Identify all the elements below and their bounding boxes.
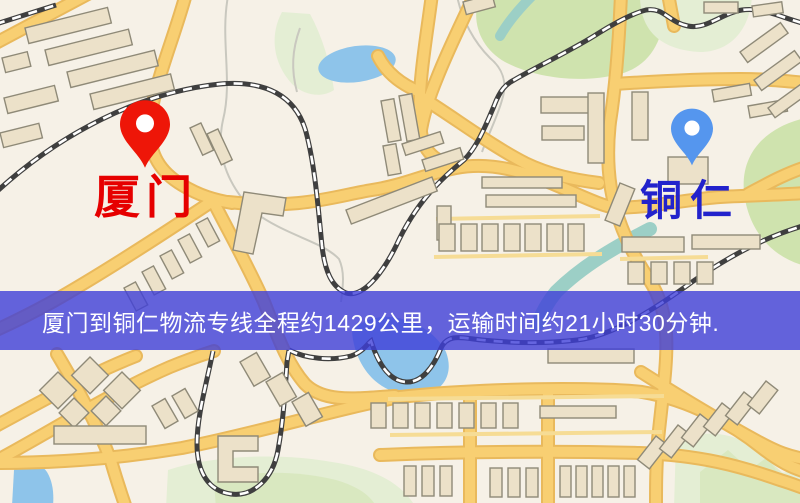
destination-marker-label: 铜仁: [640, 180, 740, 222]
map-graphic: [0, 0, 800, 503]
origin-marker-label: 厦门: [94, 174, 198, 220]
location-pin-icon: [120, 100, 170, 168]
route-info-text: 厦门到铜仁物流专线全程约1429公里，运输时间约21小时30分钟.: [0, 304, 719, 338]
location-pin-icon: [671, 108, 713, 166]
route-info-banner: 厦门到铜仁物流专线全程约1429公里，运输时间约21小时30分钟.: [0, 291, 800, 350]
map-canvas: 厦门 铜仁 厦门到铜仁物流专线全程约1429公里，运输时间约21小时30分钟.: [0, 0, 800, 503]
